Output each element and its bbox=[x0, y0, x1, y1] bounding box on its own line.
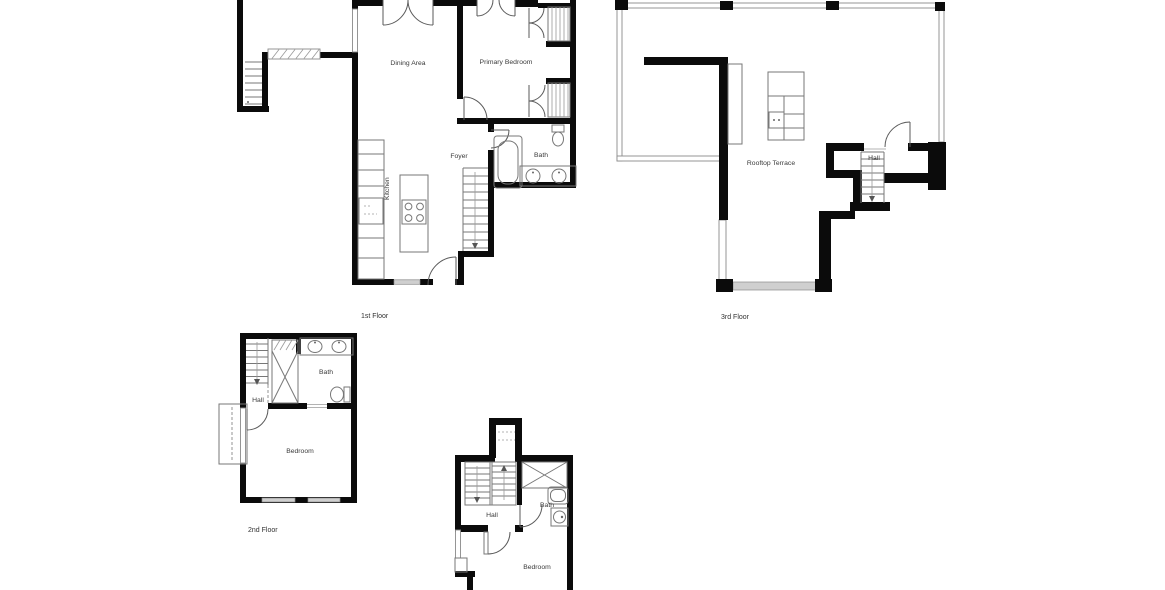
room-label-primary-bedroom: Primary Bedroom bbox=[480, 59, 533, 66]
doorway-threshold bbox=[307, 405, 327, 408]
closet bbox=[529, 83, 570, 117]
room-label-bedroom: Bedroom bbox=[286, 448, 314, 455]
room-label-hall: Hall bbox=[486, 512, 498, 519]
room-label-bath: Bath bbox=[319, 369, 333, 376]
planter bbox=[728, 64, 742, 144]
toilet-fixture bbox=[331, 387, 351, 402]
floor-plan-sheet: Dining Area Primary Bedroom Kitchen Foye… bbox=[0, 0, 1165, 590]
room-label-dining-area: Dining Area bbox=[390, 60, 425, 67]
closet bbox=[522, 462, 567, 488]
floor-plan-drawing: Dining Area Primary Bedroom Kitchen Foye… bbox=[0, 0, 1165, 590]
kitchen-counter bbox=[358, 140, 384, 279]
window bbox=[456, 530, 461, 558]
fourth-floor-plan: Hall Bath Bedroom bbox=[455, 418, 573, 590]
terrace-railing bbox=[615, 0, 945, 292]
walls bbox=[644, 57, 946, 281]
room-label-bath: Bath bbox=[534, 152, 548, 159]
hall-door bbox=[247, 409, 268, 430]
closet bbox=[529, 7, 570, 41]
duct-niche bbox=[455, 558, 467, 572]
bath-door bbox=[520, 505, 542, 527]
bathtub-fixture bbox=[494, 136, 522, 188]
hall-staircase bbox=[246, 338, 268, 403]
shower-closet bbox=[272, 340, 298, 403]
floor-label-3rd: 3rd Floor bbox=[721, 314, 750, 321]
room-label-hall: Hall bbox=[252, 397, 264, 404]
room-label-hall: Hall bbox=[868, 155, 880, 162]
floor-label-1st: 1st Floor bbox=[361, 313, 389, 320]
room-label-bath: Bath bbox=[540, 502, 554, 509]
room-label-rooftop-terrace: Rooftop Terrace bbox=[747, 160, 795, 167]
outdoor-kitchen bbox=[768, 72, 804, 140]
entry-staircase bbox=[245, 62, 262, 104]
room-label-foyer: Foyer bbox=[450, 153, 468, 160]
floor-label-2nd: 2nd Floor bbox=[248, 527, 278, 534]
vanity-sinks bbox=[300, 338, 353, 355]
terrace-door bbox=[864, 122, 910, 149]
balcony-door bbox=[241, 408, 246, 463]
window bbox=[268, 49, 320, 59]
bedroom-door bbox=[464, 97, 487, 120]
washer-fixture bbox=[551, 508, 568, 526]
walls bbox=[237, 0, 576, 285]
bedroom-door bbox=[484, 532, 510, 554]
window bbox=[394, 280, 420, 285]
room-label-bedroom: Bedroom bbox=[523, 564, 551, 571]
second-floor-plan: Bath Hall Bedroom 2nd Floor bbox=[219, 333, 357, 534]
bedroom-balcony-door bbox=[477, 0, 515, 16]
first-floor-plan: Dining Area Primary Bedroom Kitchen Foye… bbox=[237, 0, 576, 320]
room-label-kitchen: Kitchen bbox=[384, 177, 391, 200]
foyer-staircase bbox=[463, 168, 488, 251]
kitchen-island-cooktop bbox=[400, 175, 428, 252]
dining-double-door bbox=[383, 0, 433, 25]
toilet-fixture bbox=[552, 125, 564, 146]
window bbox=[308, 498, 340, 502]
third-floor-plan: Rooftop Terrace Hall 3rd Floor bbox=[615, 0, 946, 321]
window bbox=[262, 498, 295, 502]
window bbox=[353, 9, 358, 52]
